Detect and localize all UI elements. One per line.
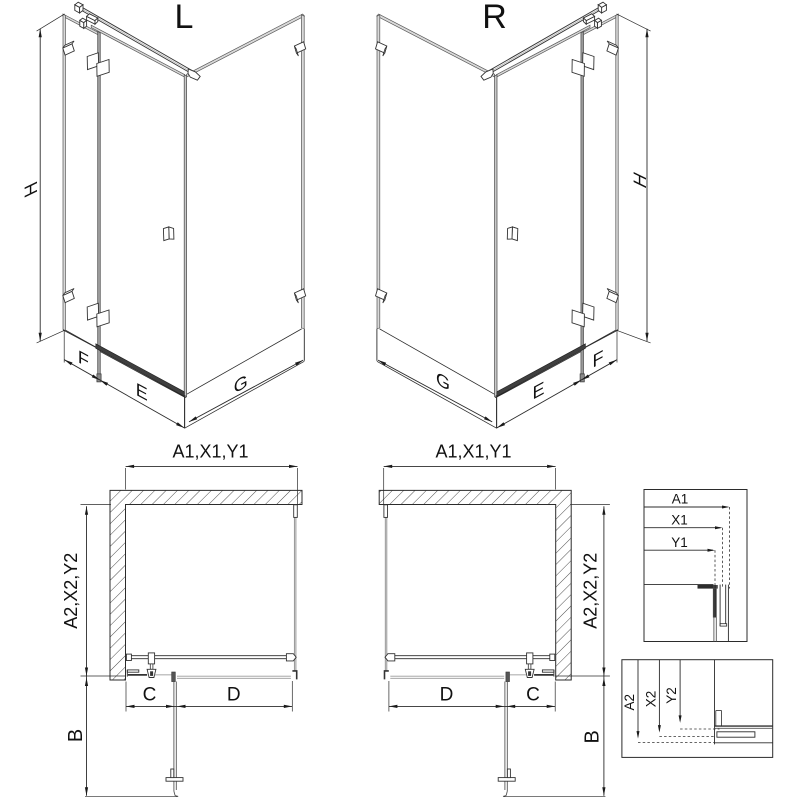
- svg-text:C: C: [143, 685, 157, 706]
- svg-text:D: D: [227, 685, 241, 706]
- svg-text:A1,X1,Y1: A1,X1,Y1: [172, 442, 248, 462]
- svg-text:A2: A2: [622, 694, 637, 711]
- svg-text:Y1: Y1: [671, 535, 688, 550]
- svg-text:A2,X2,Y2: A2,X2,Y2: [61, 553, 81, 629]
- svg-text:A1,X1,Y1: A1,X1,Y1: [435, 442, 511, 462]
- svg-text:A2,X2,Y2: A2,X2,Y2: [581, 553, 601, 629]
- svg-text:B: B: [582, 730, 604, 743]
- svg-text:R: R: [482, 0, 507, 36]
- svg-text:B: B: [65, 729, 87, 742]
- svg-text:D: D: [440, 685, 454, 706]
- svg-text:A1: A1: [672, 492, 689, 507]
- svg-text:L: L: [175, 0, 194, 36]
- svg-text:X2: X2: [643, 691, 658, 708]
- svg-text:X1: X1: [671, 512, 688, 527]
- svg-text:Y2: Y2: [664, 687, 679, 704]
- svg-text:C: C: [526, 685, 540, 706]
